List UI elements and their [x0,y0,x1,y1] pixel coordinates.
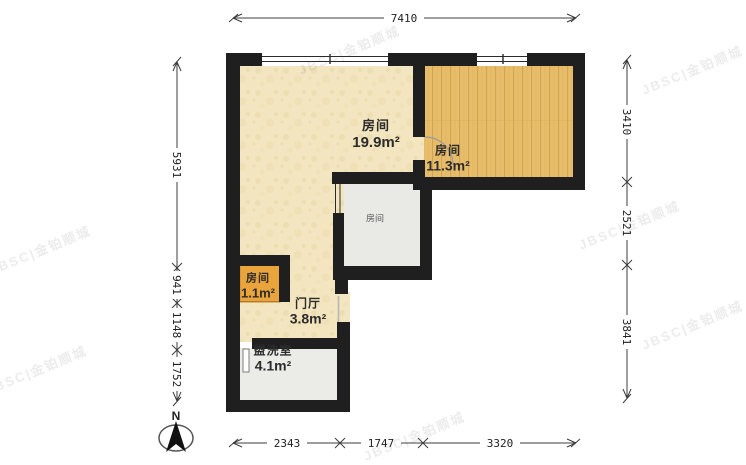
wall-divider-upper [413,53,425,137]
label-hall: 门厅 3.8m² [290,296,327,327]
door-leaf-washroom [243,349,249,372]
dim-left-941: 941 [170,275,183,295]
wall-innerroom-left [333,213,344,268]
dim-right-2521: 2521 [620,210,633,237]
floor-inner-room [344,184,421,267]
dim-bottom-1747: 1747 [368,437,395,450]
wall-innerroom-bottom [333,266,432,280]
wall-closet-right [279,255,290,302]
wall-bottom-outer [226,400,350,412]
floorplan-drawing: 7410 5931 [0,0,746,460]
north-label: N [172,409,181,423]
dim-left-1752: 1752 [170,361,183,388]
floor-door-gap [413,134,425,164]
label-inner-room: 房间 [366,214,384,225]
wall-woodroom-bottom [413,177,585,190]
floor-entry-gap [333,292,350,323]
wall-innerroom-top [332,172,422,184]
label-washroom: 盥洗室 4.1m² [253,343,292,374]
label-closet: 房间 1.1m² [241,273,275,302]
window-bedroom-large [262,53,388,66]
dim-left: 5931 941 1148 1752 [170,57,185,406]
label-bedroom-wood: 房间 11.3m² [426,143,470,174]
dim-bottom-3320: 3320 [487,437,514,450]
dim-left-5931: 5931 [170,152,183,179]
wall-innerroom-right [420,180,432,280]
dim-left-1148: 1148 [170,312,183,339]
wall-left-outer [226,53,240,412]
floorplan-canvas: 7410 5931 [0,0,746,460]
dim-right: 3410 2521 3841 [620,55,635,403]
wall-right-outer [573,53,585,190]
dim-right-3841: 3841 [620,319,633,346]
dim-top: 7410 [229,11,580,25]
label-bedroom-large: 房间 19.9m² [352,118,400,152]
dim-right-3410: 3410 [620,109,633,136]
wall-lower-right [337,322,350,412]
window-bedroom-wood [477,53,527,66]
dim-top-7410: 7410 [391,12,418,25]
dim-bottom-2343: 2343 [274,437,301,450]
north-compass: N [159,409,193,452]
dim-bottom: 2343 1747 3320 [229,436,580,450]
wall-entry-stub [335,280,348,294]
